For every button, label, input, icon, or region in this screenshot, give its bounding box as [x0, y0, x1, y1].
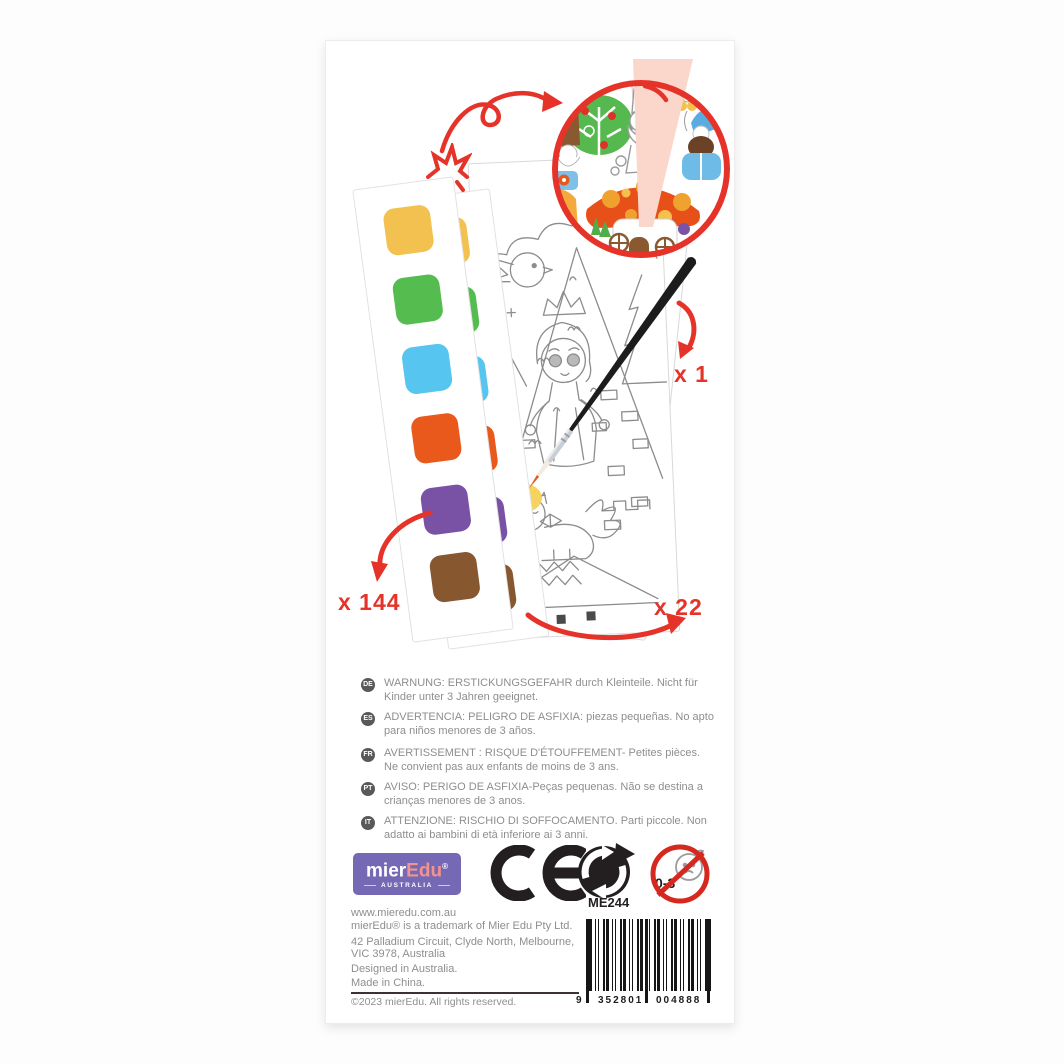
warning-text-de: WARNUNG: ERSTICKUNGSGEFAHR durch Kleinte…: [384, 677, 717, 704]
brush-count-label: x 1: [674, 361, 709, 388]
barcode-guard: [707, 919, 710, 1003]
brand-logo: mierEdu® AUSTRALIA: [353, 853, 461, 895]
barcode: 9 352801 004888: [584, 913, 716, 1013]
packaging-photo: ✦: [0, 0, 1064, 1064]
magnifier-illustration: [541, 59, 741, 271]
barcode-digits-group2: 004888: [656, 995, 701, 1006]
address-line2: VIC 3978, Australia: [351, 948, 601, 960]
warning-text-it: ATTENZIONE: RISCHIO DI SOFFOCAMENTO. Par…: [384, 815, 717, 842]
recycle-icon: [576, 841, 636, 901]
paint-swatch-brown: [428, 551, 481, 604]
paint-swatch-green: [391, 273, 444, 326]
paint-swatch-orange: [410, 412, 463, 465]
trademark-line: mierEdu® is a trademark of Mier Edu Pty …: [351, 920, 601, 932]
copyright-line: ©2023 mierEdu. All rights reserved.: [351, 996, 601, 1008]
paint-count-label: x 144: [338, 589, 401, 616]
logo-dash: [438, 885, 450, 886]
barcode-digits-group1: 352801: [598, 995, 643, 1006]
made-line: Made in China.: [351, 977, 601, 989]
lang-badge-it: IT: [361, 816, 375, 830]
warning-text-fr: AVERTISSEMENT : RISQUE D'ÉTOUFFEMENT- Pe…: [384, 747, 717, 774]
address-line1: 42 Palladium Circuit, Clyde North, Melbo…: [351, 936, 601, 948]
arrow-curve-left-icon: [370, 507, 434, 589]
lang-badge-pt: PT: [361, 782, 375, 796]
sheet-count-label: x 22: [654, 594, 703, 621]
website-url: www.mieredu.com.au: [351, 907, 601, 919]
warning-text-es: ADVERTENCIA: PELIGRO DE ASFIXIA: piezas …: [384, 711, 717, 738]
brand-name: mierEdu®: [353, 857, 461, 881]
barcode-guard: [645, 919, 648, 1003]
brand-name-edu: Edu: [406, 860, 442, 881]
age-warning-icon: 0-3: [648, 843, 714, 905]
burst-icon: [426, 143, 472, 195]
designed-line: Designed in Australia.: [351, 963, 601, 975]
paint-swatch-blue: [401, 343, 454, 396]
logo-dash: [364, 885, 376, 886]
footer-divider: [351, 992, 579, 994]
registered-mark: ®: [442, 862, 448, 871]
brand-name-mier: mier: [366, 860, 406, 881]
lang-badge-de: DE: [361, 678, 375, 692]
arrow-down-icon: [671, 299, 705, 361]
package-back-panel: ✦: [325, 40, 735, 1024]
lang-badge-fr: FR: [361, 748, 375, 762]
lang-badge-es: ES: [361, 712, 375, 726]
brand-country: AUSTRALIA: [381, 882, 433, 889]
barcode-bars: [586, 919, 712, 991]
paint-swatch-yellow: [382, 204, 435, 257]
ce-mark-icon: [486, 845, 586, 901]
warning-text-pt: AVISO: PERIGO DE ASFIXIA-Peças pequenas.…: [384, 781, 717, 808]
